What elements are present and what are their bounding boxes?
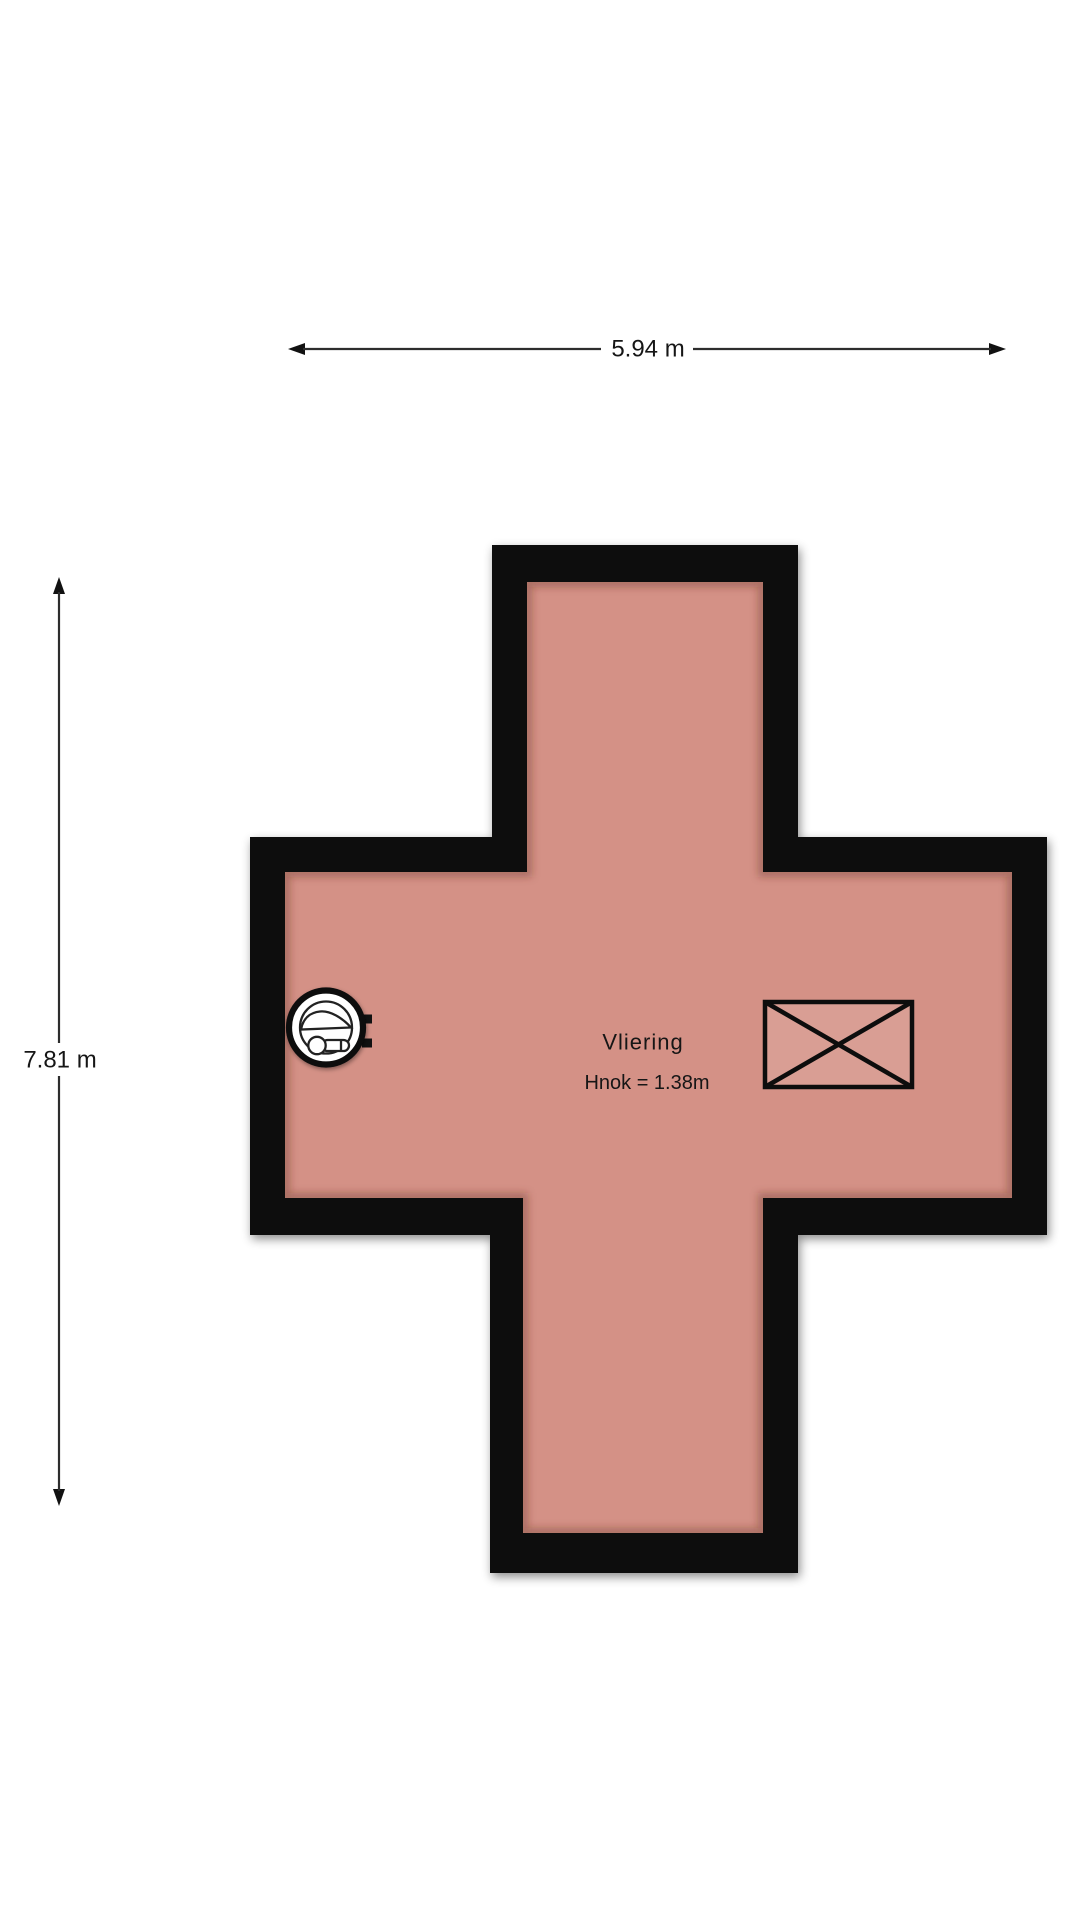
room-ridge-height-label: Hnok = 1.38m [584,1072,709,1094]
horizontal-dimension: 5.94 m [288,336,1006,363]
arrow-up-icon [53,577,65,594]
arrow-down-icon [53,1489,65,1506]
vertical-dimension: 7.81 m [23,577,96,1506]
crossed-box-icon [765,1002,912,1087]
arrow-left-icon [288,343,305,355]
floor-plan-page: 5.94 m 7.81 m [0,0,1080,1920]
floor-plan-canvas: 5.94 m 7.81 m [0,0,1080,1920]
width-dimension-label: 5.94 m [611,336,684,363]
room-label: Vliering [602,1030,683,1055]
arrow-right-icon [989,343,1006,355]
height-dimension-label: 7.81 m [23,1047,96,1074]
